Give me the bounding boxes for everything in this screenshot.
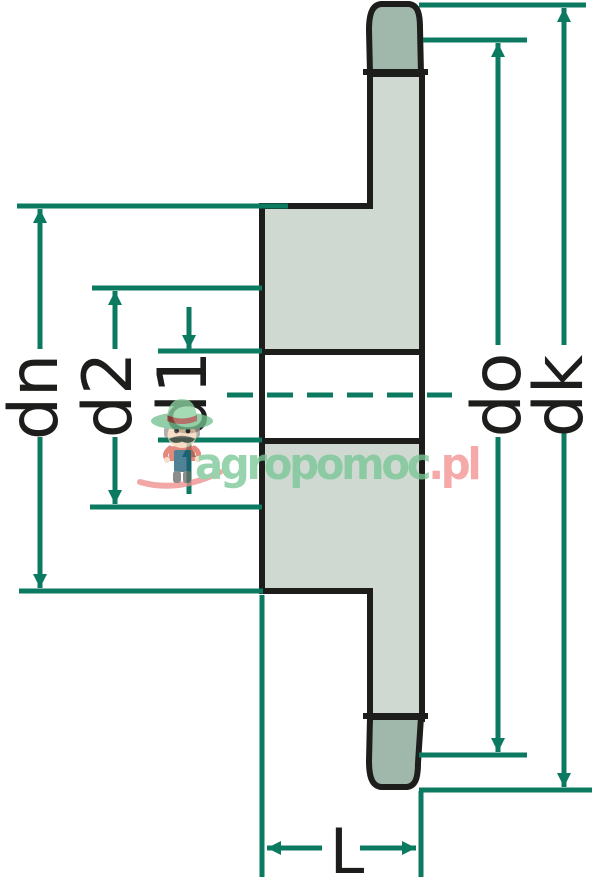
- tooth-bottom: [369, 717, 421, 787]
- sprocket-drawing: [0, 0, 600, 889]
- label-dn: dn: [1, 354, 69, 440]
- label-L: L: [330, 821, 365, 883]
- diagram-canvas: dn d2 d1 do dk L: [0, 0, 600, 889]
- tooth-top: [369, 4, 421, 74]
- label-d2: d2: [75, 352, 143, 438]
- label-d1: d1: [150, 351, 218, 437]
- label-dk: dk: [526, 355, 594, 438]
